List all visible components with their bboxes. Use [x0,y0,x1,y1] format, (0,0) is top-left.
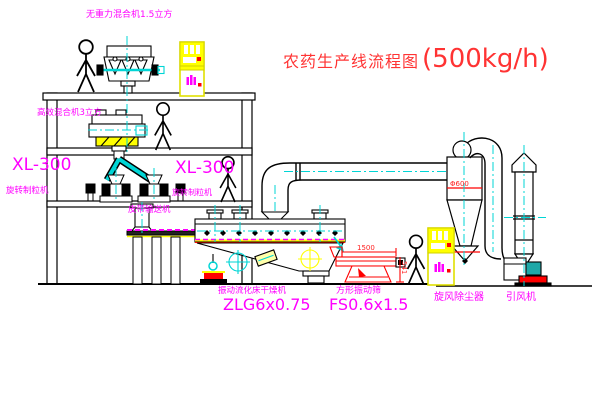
label-floor2-mixer: 高效混合机3立方 [37,109,102,118]
label-dryer-model: ZLG6x0.75 [223,297,311,313]
label-granulator-left: 旋转制粒机 [6,187,49,196]
fluid-bed-dryer [195,210,345,283]
dryer-support [200,254,227,283]
induced-draft-fan [504,258,551,286]
belt-conveyor [127,230,203,284]
indicator-light [447,269,451,273]
roof-slab [43,93,255,100]
person-figure [408,235,425,284]
dimension-cyclone: Φ600 [450,180,469,188]
indicator-light [447,243,451,247]
indicator-light [197,57,201,61]
title-text: 农药生产线流程图 [283,48,419,72]
label-screen-model: FS0.6x1.5 [329,297,408,313]
gravity-free-mixer [97,46,164,93]
title-capacity: (500kg/h) [422,44,549,74]
label-belt-conveyor: 皮带输送机 [128,206,171,215]
label-granulator-right: 旋转制粒机 [172,189,212,197]
pesticide-production-line-drawing: 农药生产线流程图 (500kg/h) 无重力混合机1.5立方 高效混合机3立方 … [0,0,600,403]
dimension-screen-length: 1500 [357,244,375,252]
fan-motor [526,262,541,275]
control-cabinet-top [180,42,204,96]
floor2-slab [47,148,252,155]
person-figure [77,40,95,92]
label-cyclone: 旋风除尘器 [434,293,484,303]
dimension-screen-height: 541 [400,261,408,274]
label-top-mixer: 无重力混合机1.5立方 [86,11,172,20]
label-xl300-left: XL-300 [12,157,71,174]
drawing-title: 农药生产线流程图 (500kg/h) [283,44,549,74]
indicator-light [198,83,202,87]
label-xl300-right: XL-300 [175,160,234,177]
control-cabinet-right [428,228,454,285]
vibrating-screen [330,247,405,282]
label-fan: 引风机 [506,293,536,303]
person-figure [155,103,171,150]
